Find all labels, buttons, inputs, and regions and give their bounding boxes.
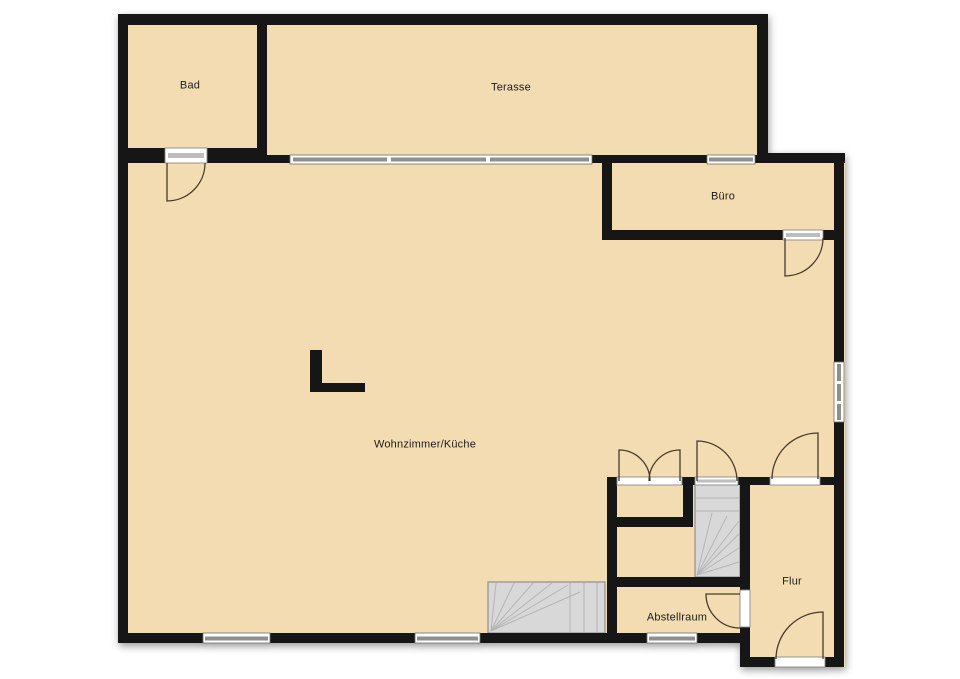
wall-segment (757, 14, 768, 163)
wall-segment (820, 477, 844, 485)
building (118, 14, 845, 667)
flur-exterior-door-sill (775, 657, 825, 667)
wall-segment (757, 153, 845, 163)
wall-segment (118, 14, 768, 25)
wall-segment (257, 14, 267, 163)
floorplan-canvas (0, 0, 960, 679)
room-label-wohnzimmer: Wohnzimmer/Küche (374, 440, 476, 451)
room-label-flur: Flur (782, 577, 802, 588)
wall-segment (607, 477, 617, 643)
wall-segment (480, 633, 647, 643)
main-floor (118, 148, 845, 667)
main-staircase (488, 582, 605, 633)
wall-segment (607, 577, 750, 587)
stair-door-sill (695, 477, 738, 485)
flur-entry-door-sill (770, 477, 820, 485)
buero-door-sill (783, 230, 823, 240)
room-label-buero: Büro (711, 192, 735, 203)
wall-segment (823, 230, 844, 240)
room-label-terasse: Terasse (491, 83, 531, 94)
wall-segment (118, 633, 203, 643)
floorplan-page: Bad Terasse Büro Wohnzimmer/Küche Abstel… (0, 0, 960, 679)
wall-segment (740, 627, 750, 667)
bad-door-sill (165, 148, 207, 163)
bottom-window-right (415, 633, 480, 643)
kitchen-counter (310, 383, 365, 392)
winder-staircase (695, 483, 740, 577)
wall-segment (697, 633, 740, 643)
wall-segment (267, 155, 290, 163)
room-label-bad: Bad (180, 81, 200, 92)
wall-segment (118, 148, 165, 163)
wall-segment (602, 230, 783, 240)
wall-segment (207, 148, 267, 163)
wall-segment (683, 477, 693, 527)
wall-segment (607, 517, 693, 527)
wall-segment (602, 155, 612, 240)
buero-window (707, 155, 755, 164)
abstellraum-door-sill (740, 590, 750, 627)
right-wall-window (834, 362, 844, 422)
wall-segment (740, 477, 750, 590)
wall-segment (270, 633, 415, 643)
wall-segment (834, 422, 844, 667)
bottom-window-left (203, 633, 270, 643)
wall-segment (834, 153, 844, 362)
room-label-abstellraum: Abstellraum (647, 613, 707, 624)
terasse-window (290, 155, 592, 164)
wall-segment (118, 14, 128, 643)
abstellraum-window (647, 633, 697, 643)
